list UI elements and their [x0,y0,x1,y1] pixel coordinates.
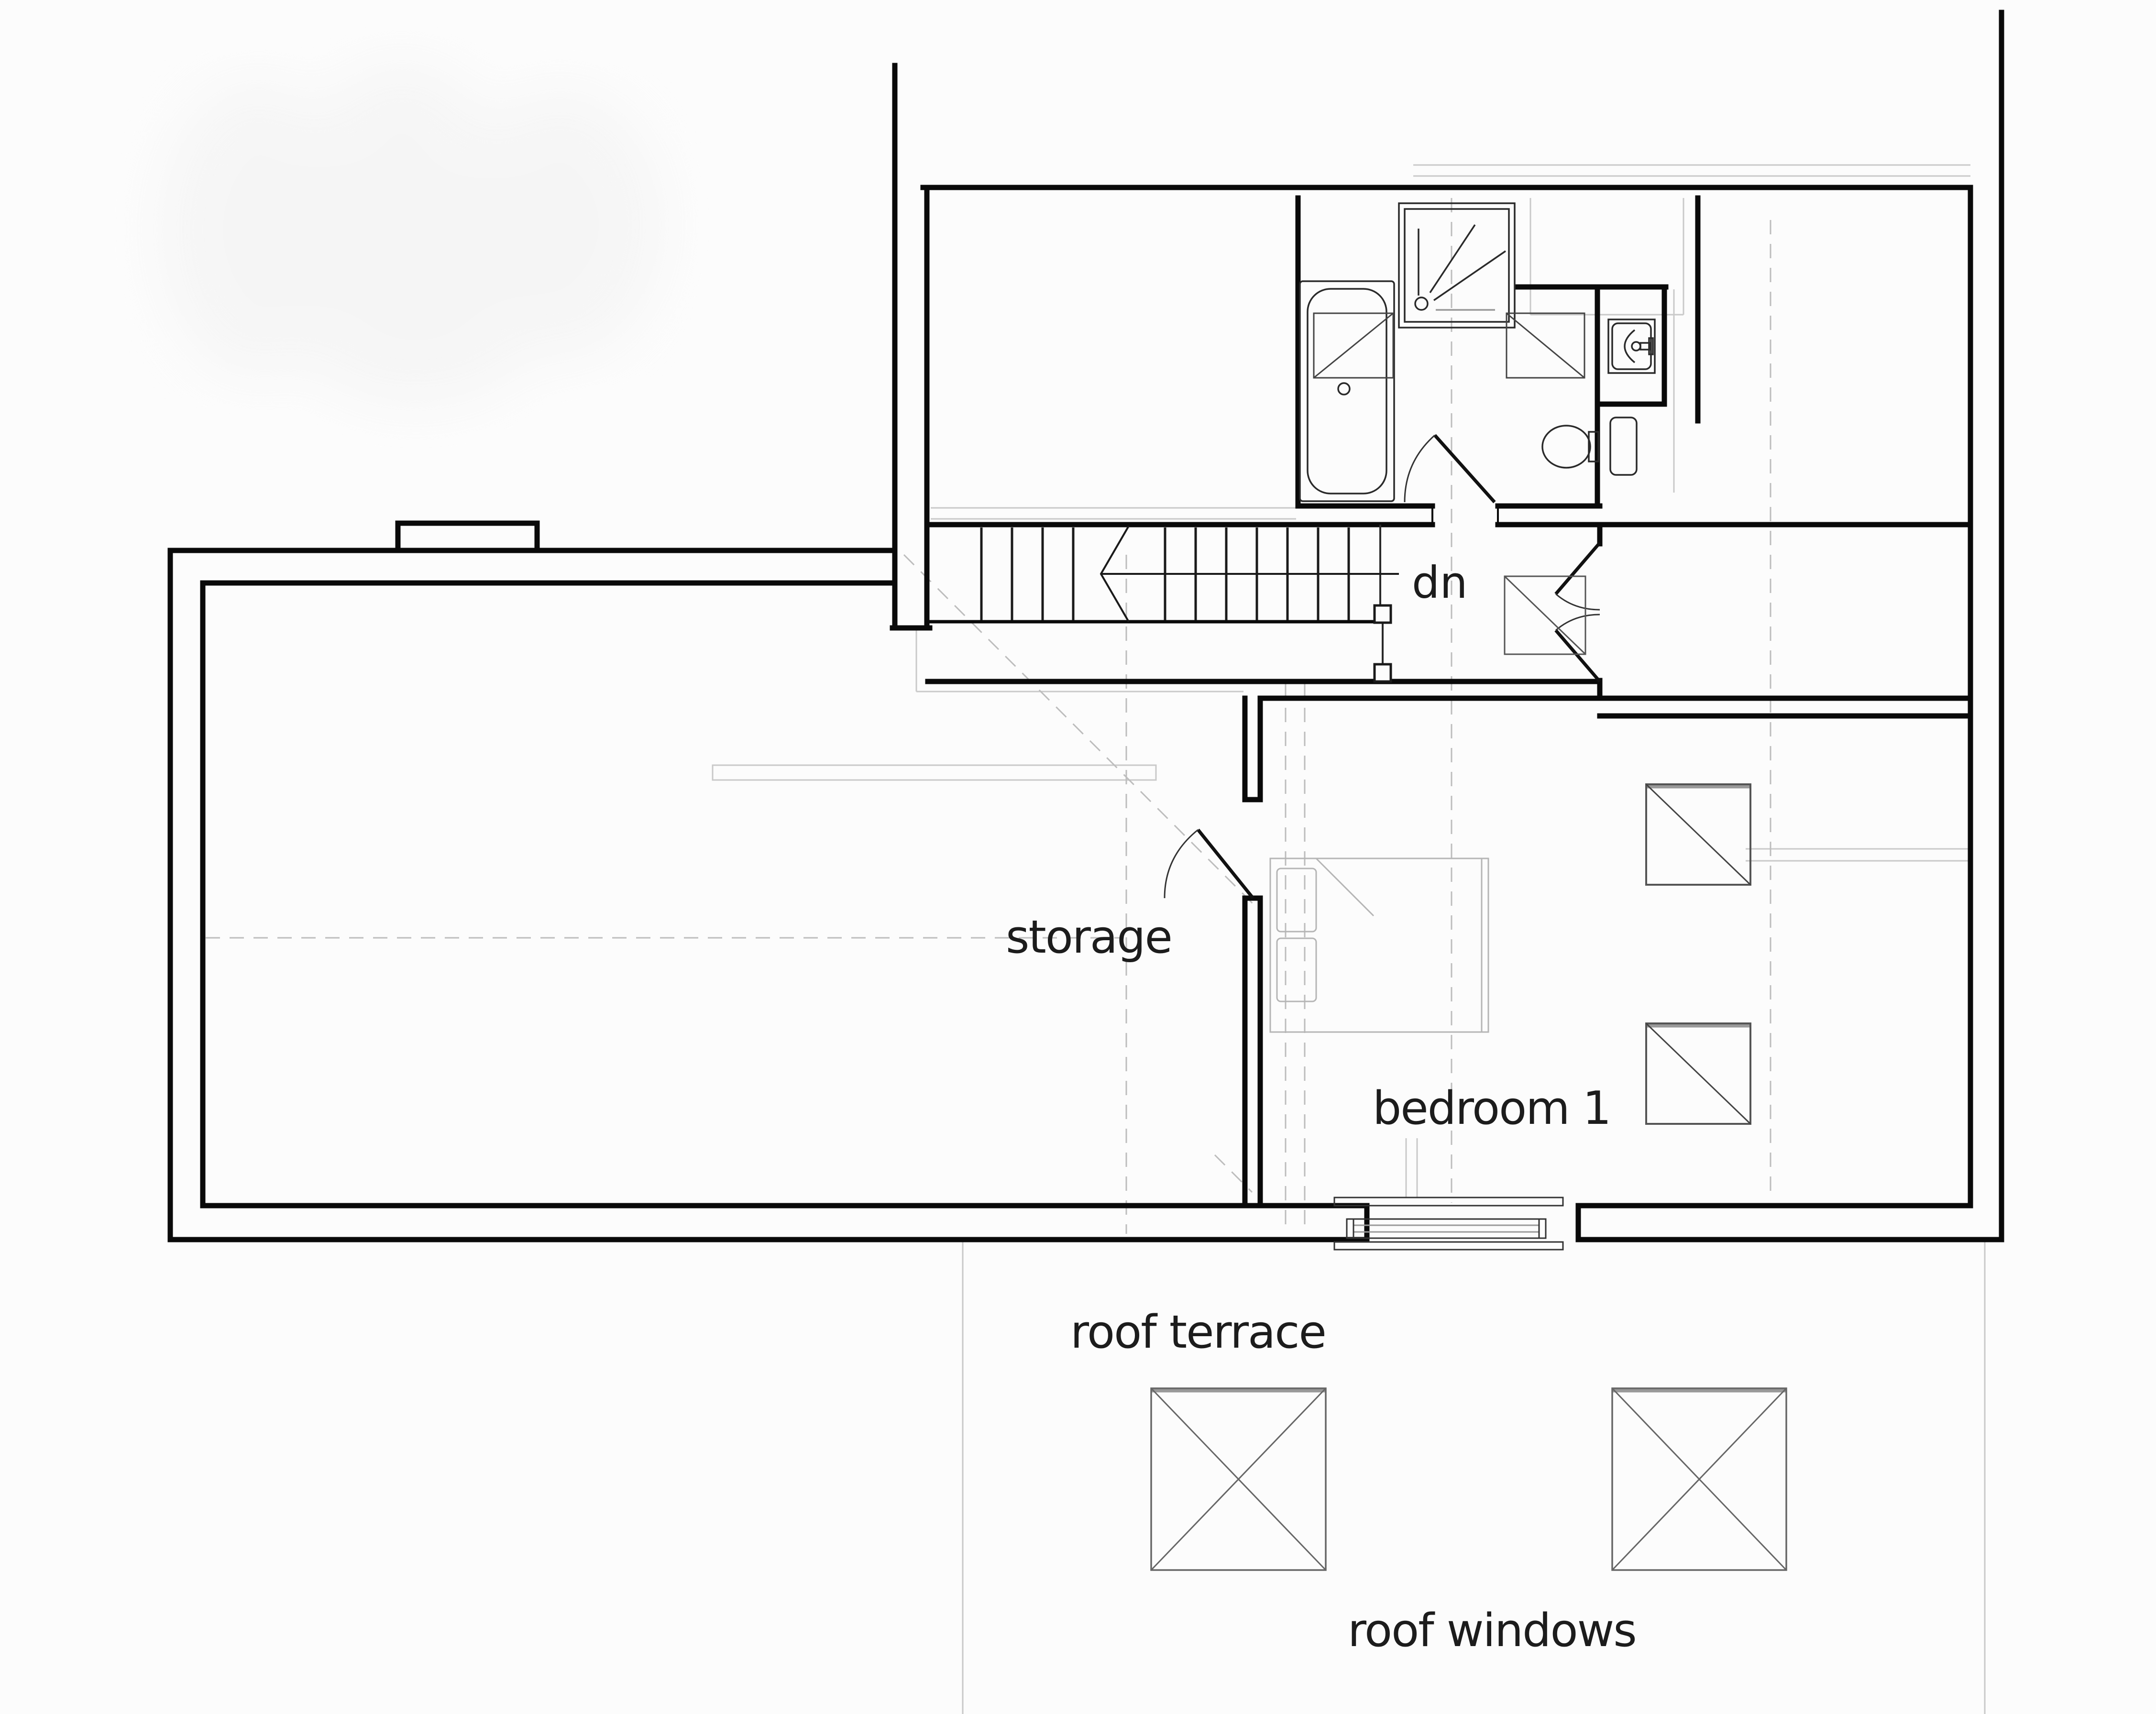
newel-post-top [1375,605,1391,623]
door-swing-arc-lower [1556,615,1600,630]
roof-terrace-label: roof terrace [1070,1306,1326,1359]
bed-outline [1270,858,1488,1032]
door-leaf [1198,830,1253,898]
storage-door [1165,830,1253,898]
towel-radiator [1610,418,1637,475]
basin-bowl-arc [1625,330,1635,363]
window-jamb-left [1347,1219,1353,1238]
stair-direction-label: dn [1412,557,1468,608]
roof-windows-label: roof windows [1348,1604,1636,1657]
staircase [928,525,1399,681]
construction-lines-below [713,165,1985,1714]
rooflight-landing [1505,576,1585,654]
wall-below-landing [931,508,1296,519]
landing-double-door [1556,543,1600,681]
bathroom-fixtures [1300,203,1655,501]
door-leaf [1435,435,1495,502]
rooflight-bedroom-a [1646,784,1750,885]
bed-sheet-fold [1316,858,1374,916]
shower-head-icon [1415,297,1428,310]
floor-plan-drawing: dn storage bedroom 1 roof terrace roof w… [0,0,2156,1714]
bedroom-1-label: bedroom 1 [1373,1082,1610,1135]
beam-line-east [1746,849,1969,861]
bathtub-drain-icon [1338,383,1350,395]
bed [1270,858,1488,1032]
washbasin [1608,319,1655,373]
rooflight-bedroom-b [1646,1023,1750,1124]
rooflight-bathroom-a [1314,313,1393,378]
bathroom-door [1405,435,1495,502]
bed-pillow-2 [1277,938,1316,1001]
toilet-bowl [1542,426,1590,468]
door-swing-arc-upper [1556,594,1600,610]
toilet [1542,426,1598,468]
walls-below-bathroom [1530,198,1683,315]
exterior-walls [170,12,2002,1240]
threshold-lines [1406,1138,1417,1198]
newel-post-bottom [1375,664,1391,681]
roof-plane-dashed-lines [206,198,1771,1234]
storage-bedroom-divider [1245,698,1260,1206]
door-swing-arc [1165,830,1198,898]
bed-pillow-1 [1277,868,1316,932]
floor-plan-sheet: dn storage bedroom 1 roof terrace roof w… [0,0,2156,1714]
roof-windows [1151,1388,1786,1570]
door-jamb-lines [1432,506,1498,525]
hip-dashed-diagonal [904,555,1255,906]
window-sill-outer [1334,1242,1563,1250]
roof-window-2 [1612,1388,1786,1570]
window-frame [1347,1219,1546,1238]
eaves-line [1413,165,1970,176]
window-glazing-lines [1353,1225,1539,1232]
shower-tray [1399,203,1515,328]
basin-plug-icon [1632,342,1640,351]
storage-room-label: storage [1006,911,1172,964]
door-leaf-lower [1556,630,1600,681]
purlin-below [713,765,1156,780]
interior-walls [928,198,1970,1206]
party-wall-west [892,66,930,628]
door-leaf-upper [1556,543,1600,594]
chimney [398,523,537,550]
rooflight-bathroom-b [1507,313,1584,378]
shower-spray-lines [1419,225,1506,300]
bathroom-door-jambs [1432,506,1498,525]
roof-window-1 [1151,1388,1326,1570]
window-jamb-right [1539,1219,1546,1238]
door-swing-arc [1405,435,1435,502]
terrace-window-jambs [1367,1206,1578,1240]
labels: dn storage bedroom 1 roof terrace roof w… [1006,557,1636,1657]
